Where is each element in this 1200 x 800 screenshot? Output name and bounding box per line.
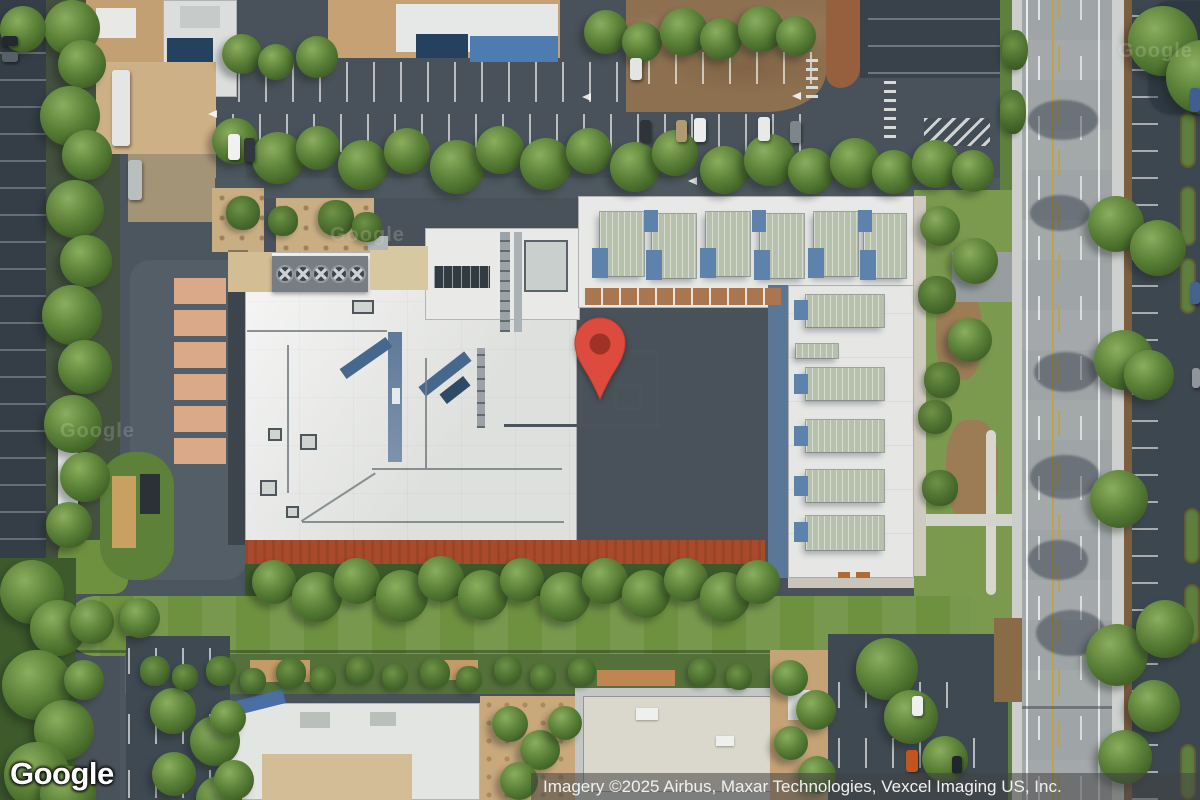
hvac-blue-module: [644, 210, 658, 232]
pipe-rack: [477, 348, 485, 428]
wing-gap-band: [768, 285, 790, 578]
tree-shadow: [1028, 540, 1088, 580]
hvac-blue-module: [646, 250, 662, 280]
car: [912, 696, 923, 716]
tree: [774, 726, 808, 760]
tree: [214, 760, 254, 800]
rust-planting-strip: [826, 0, 860, 88]
tree: [920, 206, 960, 246]
bush: [276, 658, 306, 688]
ac-box: [352, 300, 374, 314]
rooftop-vent: [716, 736, 734, 746]
bush: [310, 666, 336, 692]
tree: [46, 502, 92, 548]
tree-shadow: [1030, 455, 1100, 499]
tree: [58, 40, 106, 88]
tree: [334, 558, 380, 604]
parked-trailer: [112, 70, 130, 146]
tree: [622, 570, 670, 618]
bush: [140, 656, 170, 686]
tree: [60, 452, 110, 502]
rooftop-vent: [636, 708, 658, 720]
ghost-watermark: Google: [330, 224, 405, 247]
roof-seam: [630, 350, 658, 353]
wing-brick-edge: [583, 288, 781, 305]
roof-platform: [524, 240, 568, 292]
roof-seam: [302, 521, 564, 523]
loading-bay: [174, 278, 226, 304]
tree: [622, 22, 662, 62]
tree: [252, 132, 304, 184]
tree: [1090, 470, 1148, 528]
car: [676, 120, 687, 142]
roof-seam: [287, 345, 289, 493]
tree: [1130, 220, 1186, 276]
lane-arrow: [582, 93, 591, 101]
satellite-map-viewport[interactable]: Google Google Google Google Imagery ©202…: [0, 0, 1200, 800]
hedge-planter: [597, 670, 675, 686]
tree: [952, 238, 998, 284]
hvac-blue-module: [794, 300, 808, 320]
car: [790, 121, 801, 143]
hvac-blue-module: [794, 374, 808, 394]
bush: [268, 206, 298, 236]
tree: [1136, 600, 1194, 658]
tree: [296, 36, 338, 78]
bush: [918, 400, 952, 434]
tree: [60, 235, 112, 287]
tree: [1124, 350, 1174, 400]
tree: [70, 600, 114, 644]
tree: [788, 148, 834, 194]
car: [244, 138, 255, 162]
bush: [226, 196, 260, 230]
hvac-unit: [806, 516, 884, 550]
tree: [948, 318, 992, 362]
hvac-unit: [796, 344, 838, 358]
tree: [492, 706, 528, 742]
hvac-blue-module: [794, 476, 808, 496]
tree: [548, 706, 582, 740]
car: [906, 750, 918, 772]
tree: [1128, 680, 1180, 732]
ac-box: [260, 480, 277, 496]
car: [640, 120, 651, 142]
tree: [566, 128, 612, 174]
tree: [520, 138, 572, 190]
bush: [922, 470, 958, 506]
tree-shadow: [1028, 100, 1098, 140]
car: [1190, 282, 1200, 304]
car: [952, 756, 962, 774]
tree: [64, 660, 104, 700]
fan-icon: [276, 265, 294, 283]
roof-seam: [372, 468, 562, 470]
car: [1192, 368, 1200, 388]
imagery-attribution: Imagery ©2025 Airbus, Maxar Technologies…: [531, 773, 1200, 800]
walkway: [986, 430, 996, 595]
tree: [58, 340, 112, 394]
tree: [700, 146, 748, 194]
fan-icon: [348, 265, 366, 283]
blue-duct: [392, 388, 400, 404]
tree: [222, 34, 262, 74]
bush: [382, 664, 408, 690]
bush: [924, 362, 960, 398]
pallet-stack: [112, 476, 136, 548]
tree: [872, 150, 916, 194]
tree: [776, 16, 816, 56]
hvac-blue-module: [808, 248, 824, 278]
tree: [252, 560, 296, 604]
roof-seam: [656, 350, 659, 428]
bush: [726, 664, 752, 690]
navy-container: [416, 34, 468, 58]
hvac-blue-module: [592, 248, 608, 278]
parking-row-lines: [648, 52, 818, 84]
rooftop-unit: [300, 712, 330, 728]
hvac-unit: [806, 295, 884, 327]
tree-shadow: [1030, 195, 1090, 231]
blue-container: [470, 36, 558, 62]
tree: [952, 150, 994, 192]
rooftop-unit: [370, 712, 396, 726]
parking-planter: [1184, 508, 1200, 564]
bush: [918, 276, 956, 314]
roof-seam: [425, 358, 427, 468]
ac-box: [286, 506, 299, 518]
hvac-blue-module: [858, 210, 872, 232]
car: [2, 52, 18, 62]
tree: [120, 598, 160, 638]
loading-bay: [174, 406, 226, 432]
pipe-rack: [514, 232, 522, 332]
tree: [830, 138, 880, 188]
navy-container: [167, 38, 213, 62]
tree: [258, 44, 294, 80]
parking-row-lines: [238, 62, 638, 102]
car: [2, 36, 18, 46]
hvac-unit: [806, 470, 884, 502]
striped-walk: [806, 56, 818, 98]
loading-bay: [174, 374, 226, 400]
rooftop-unit: [180, 6, 220, 28]
walkway: [788, 578, 914, 588]
tree: [42, 285, 102, 345]
tree: [296, 126, 340, 170]
fan-icon: [330, 265, 348, 283]
roof-seam: [504, 424, 660, 427]
bush: [206, 656, 236, 686]
lane-arrow: [792, 92, 801, 100]
bush: [530, 664, 556, 690]
roof-tan-section: [262, 754, 412, 800]
lane-arrow: [208, 110, 217, 118]
loading-bay: [174, 310, 226, 336]
loading-bay: [174, 342, 226, 368]
car: [758, 117, 770, 141]
bush: [346, 656, 374, 684]
tree: [796, 690, 836, 730]
ac-box: [300, 434, 317, 450]
walkway: [918, 514, 1018, 526]
ghost-watermark: Google: [1118, 40, 1193, 63]
bush: [1002, 30, 1028, 70]
hvac-blue-module: [752, 210, 766, 232]
car: [1190, 88, 1200, 112]
lane-arrow: [688, 177, 697, 185]
bush: [420, 658, 450, 688]
tree: [582, 558, 628, 604]
tree: [384, 128, 430, 174]
fan-icon: [312, 265, 330, 283]
tree: [210, 700, 246, 736]
bush: [688, 658, 716, 686]
tree: [46, 180, 104, 238]
pavement-crack: [1022, 706, 1112, 709]
bush: [568, 658, 596, 686]
equipment-box: [370, 246, 428, 290]
tree: [736, 560, 780, 604]
hvac-blue-module: [860, 250, 876, 280]
tree: [152, 752, 196, 796]
hvac-unit: [806, 420, 884, 452]
hvac-blue-module: [754, 250, 770, 280]
hvac-unit: [806, 368, 884, 400]
bush: [456, 666, 482, 692]
tree: [884, 690, 938, 744]
tree: [652, 130, 698, 176]
ghost-watermark: Google: [60, 420, 135, 443]
tree-shadow: [1034, 352, 1098, 392]
tree: [584, 10, 628, 54]
striped-walk: [884, 76, 896, 138]
bush: [494, 656, 522, 684]
tree: [500, 558, 544, 602]
top-right-lot-lines: [868, 4, 1008, 74]
tree: [338, 140, 388, 190]
parked-trailer: [128, 160, 142, 200]
fan-icon: [294, 265, 312, 283]
car: [228, 134, 240, 160]
dirt-strip: [994, 618, 1022, 702]
bush: [240, 668, 266, 694]
equipment-box: [228, 252, 272, 292]
location-pin-icon[interactable]: [572, 317, 628, 401]
pipe-rack: [500, 232, 510, 332]
bush: [172, 664, 198, 690]
hvac-blue-module: [794, 426, 808, 446]
hvac-blue-module: [700, 248, 716, 278]
tree: [62, 130, 112, 180]
car: [694, 118, 706, 142]
tree: [476, 126, 524, 174]
tree: [150, 688, 196, 734]
tree: [772, 660, 808, 696]
car: [630, 58, 642, 80]
tree: [700, 18, 742, 60]
roof-seam: [247, 330, 387, 332]
dark-equipment-row: [434, 266, 490, 288]
dumpster: [140, 474, 160, 514]
loading-bay: [174, 438, 226, 464]
hvac-blue-module: [794, 522, 808, 542]
google-logo[interactable]: Google: [10, 756, 114, 792]
ac-box: [268, 428, 282, 441]
top-left-building-unit: [96, 8, 136, 38]
bush: [1000, 90, 1026, 134]
parking-planter: [1180, 112, 1196, 168]
